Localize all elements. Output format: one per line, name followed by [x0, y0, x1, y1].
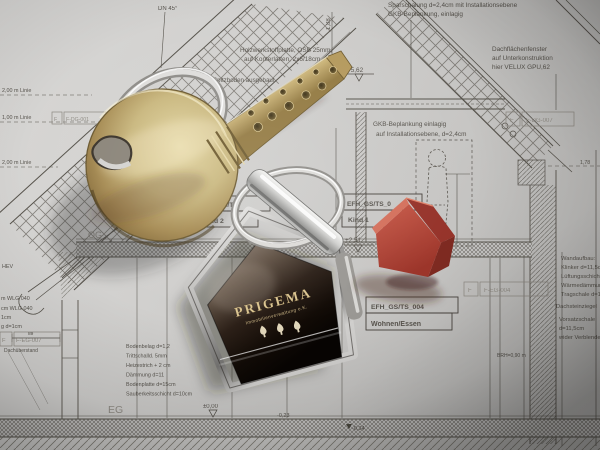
ref-eg004-f: F [468, 288, 472, 294]
elevation-251: +2,51 [345, 237, 362, 244]
left-fragment-3: 1cm [1, 315, 12, 321]
annotation-fenster-3: hier VELUX GPU,62 [492, 64, 550, 71]
floor-label-eg: EG [108, 404, 123, 416]
wall-layer-0: Wandaufbau: [561, 256, 596, 262]
annotation-sparschalung: Sparschalung d=2,4cm mit Installationseb… [388, 2, 518, 9]
ref-dg007: F-DG-007 [526, 118, 553, 124]
elevation-m023: -0,23 [277, 413, 290, 419]
brh-label: BRH=0,90 m [497, 353, 526, 359]
ref-eg004: F-EG-004 [484, 288, 511, 294]
eg-floor-slab [0, 416, 600, 450]
floor-layer-5: Sauberkeitsschicht d=10cm [126, 392, 193, 398]
room2-id: EFH_GS/TS_0 [347, 201, 391, 208]
annotation-osb-2: auf Konterlatten, 2x6/18cm [244, 56, 320, 63]
ref-dg001-f: F [54, 117, 57, 123]
left-fragment-4: g d=1cm [1, 324, 22, 330]
room3-id: EFH_GS/TS_004 [371, 304, 424, 311]
dimension-178: 1,78 [580, 160, 590, 166]
right-note-0: Dachsteinziegel [556, 304, 597, 310]
annotation-osb-1: Holzwerkstoffplatte, OSB 25mm, [240, 47, 332, 54]
left-fragment-2: cm WLG 040 [1, 306, 32, 312]
annotation-fenster-1: Dachflächenfenster [492, 46, 548, 53]
ref-eg007-f: F [2, 338, 6, 344]
annotation-gkb-mid-1: GKB-Beplankung einlagig [373, 121, 447, 128]
right-note-2: d=11,5cm [559, 326, 584, 332]
room3-name: Wohnen/Essen [371, 321, 421, 328]
floor-layer-2: Heizestrich + 2 cm [126, 363, 171, 369]
ref-dg007-f: F [510, 118, 514, 124]
house-contact-shadow [386, 274, 438, 290]
meter-line-label-1: 2,00 m Linie [2, 88, 31, 94]
dimension-188: 1,88 [326, 18, 332, 30]
floor-layer-4: Bodenplatte d=15cm [126, 382, 176, 388]
annotation-dn45: DN 45° [158, 6, 178, 12]
dimension-89: 89 [28, 331, 34, 337]
right-eave-wall [518, 150, 600, 446]
annotation-spitzboden: Spitzboden ausgebaut [213, 77, 275, 84]
roof-truss-right [376, 0, 600, 168]
annotation-fenster-2: auf Unterkonstruktion [492, 55, 553, 62]
floor-layer-1: Trittschalld. 5mm [126, 354, 167, 360]
ref-dg001: F-DG-001 [66, 117, 89, 123]
room2-name: Kind 1 [348, 217, 369, 224]
meter-line-label-2: 1,00 m Linie [2, 115, 31, 121]
floor-layer-0: Bodenbelag d=1,2 [126, 344, 170, 350]
annotation-gkb-mid-2: auf Installationsebene, d=2,4cm [376, 131, 466, 138]
left-fragment-0: HEV [2, 264, 13, 270]
overhang-label: Dachüberstand [4, 348, 38, 354]
elevation-m034: -0,34 [352, 426, 365, 432]
right-note-3: wider Verblender [558, 335, 600, 341]
wall-layer-2: Lüftungsschicht [561, 274, 600, 280]
wall-layer-3: Wärmedämmung [561, 283, 600, 289]
elevation-000: ±0,00 [203, 404, 219, 410]
ref-eg007: F-EG-007 [16, 338, 41, 344]
right-note-1: Vorsatzschale [559, 317, 595, 323]
left-fragment-1: m WLG 040 [1, 296, 30, 302]
meter-line-label-3: 2,00 m Linie [2, 160, 31, 166]
wall-layer-4: Tragschale d=17,5 [561, 292, 600, 298]
floor-layer-3: Dämmung d=11 [126, 373, 164, 379]
annotation-gkb-top: GKB-Beplankung, einlagig [388, 11, 463, 18]
photo-key-keychain-on-blueprint: DN 45° Sparschalung d=2,4cm mit Installa… [0, 0, 600, 450]
wall-layer-1: Klinker d=11,5cm [561, 265, 600, 271]
